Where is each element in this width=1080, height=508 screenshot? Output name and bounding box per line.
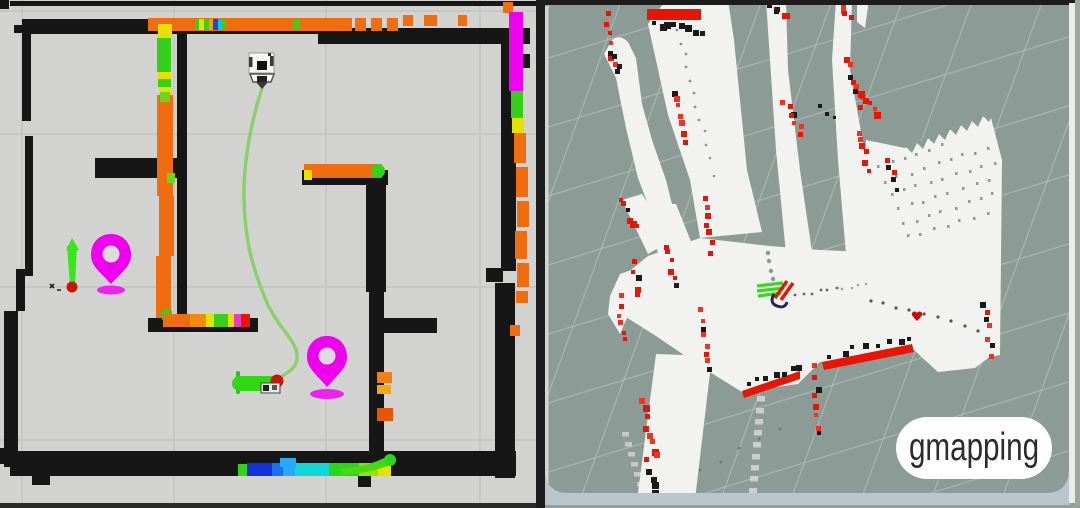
svg-text:gmapping: gmapping bbox=[909, 426, 1039, 469]
